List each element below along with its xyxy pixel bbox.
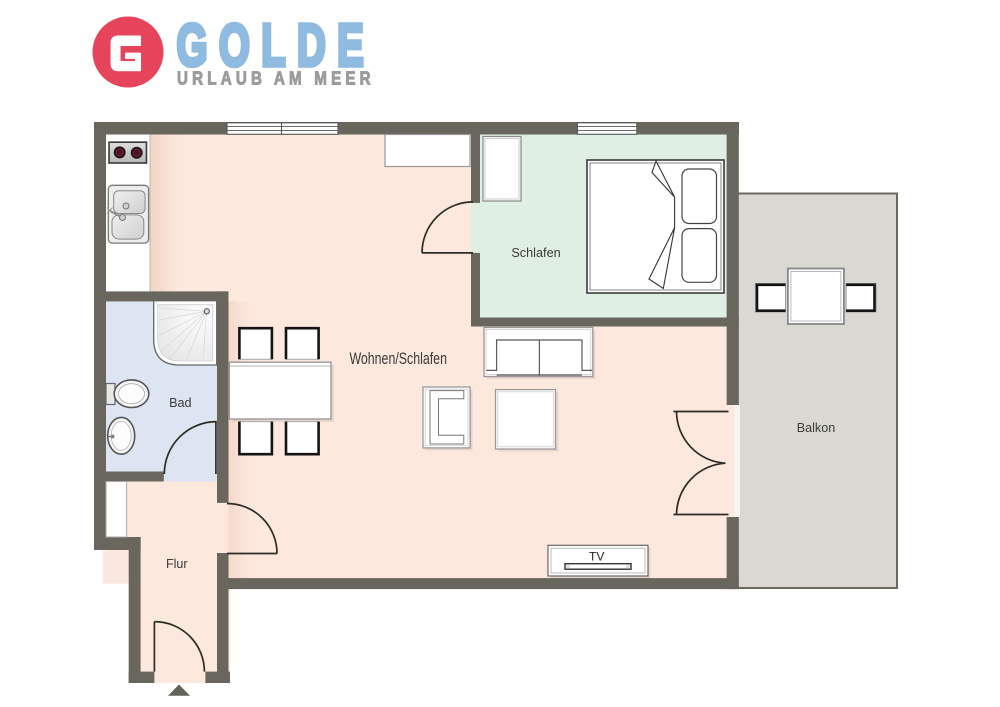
svg-text:URLAUB AM MEER: URLAUB AM MEER xyxy=(177,68,375,89)
svg-text:TV: TV xyxy=(589,549,604,563)
svg-text:Balkon: Balkon xyxy=(797,421,836,435)
svg-text:Bad: Bad xyxy=(169,396,191,410)
svg-text:Schlafen: Schlafen xyxy=(511,246,560,260)
svg-text:Wohnen/Schlafen: Wohnen/Schlafen xyxy=(349,351,447,369)
svg-text:Flur: Flur xyxy=(166,557,188,571)
